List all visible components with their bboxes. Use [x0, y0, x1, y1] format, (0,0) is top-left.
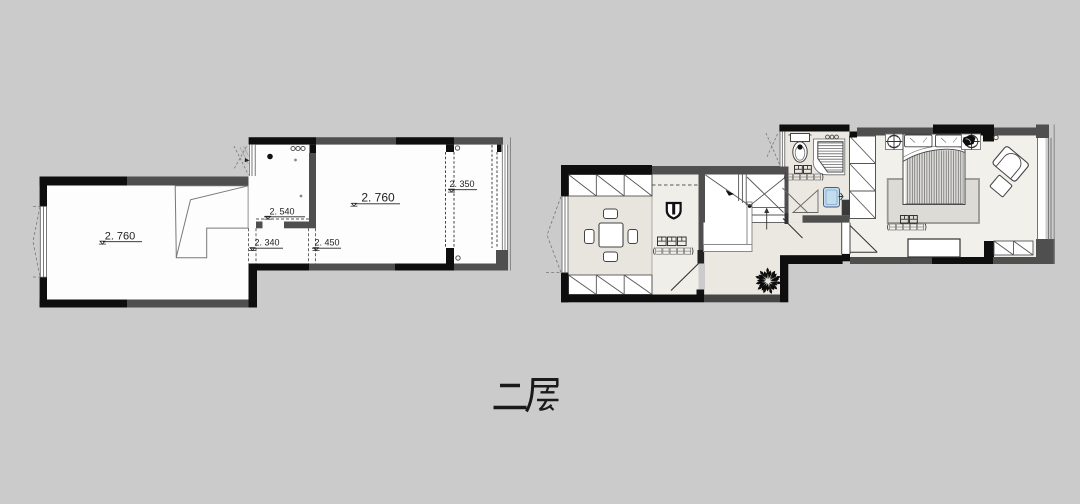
svg-text:2. 450: 2. 450	[314, 238, 339, 248]
svg-text:2. 340: 2. 340	[254, 238, 279, 248]
svg-text:2. 760: 2. 760	[105, 231, 136, 243]
svg-text:2. 540: 2. 540	[269, 207, 294, 217]
svg-text:2. 760: 2. 760	[361, 191, 395, 205]
svg-text:2. 350: 2. 350	[449, 179, 474, 189]
